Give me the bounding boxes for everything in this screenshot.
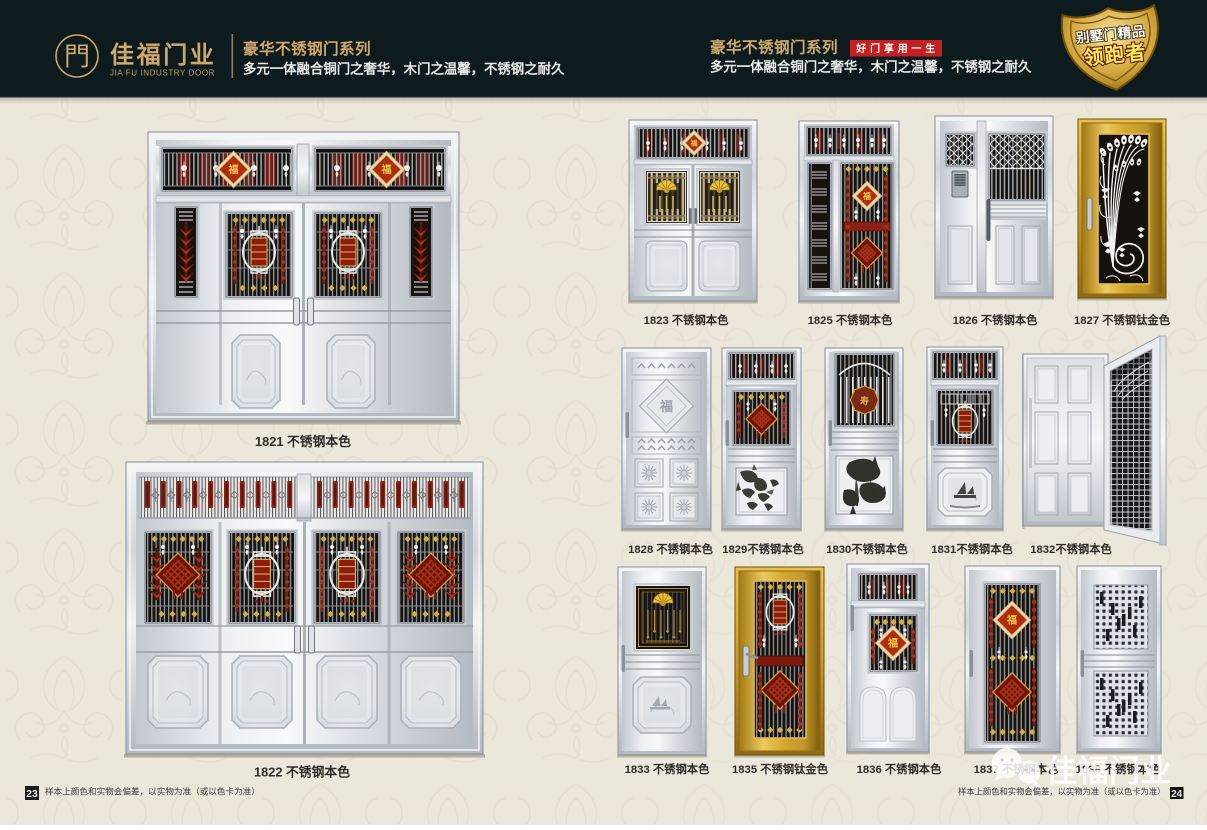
svg-text:1831不锈钢本色: 1831不锈钢本色 xyxy=(931,542,1013,556)
svg-text:24: 24 xyxy=(1171,789,1183,800)
svg-text:豪华不锈钢门系列: 豪华不锈钢门系列 xyxy=(710,38,838,57)
svg-text:样本上颜色和实物会偏差，以实物为准（或以色卡为准）: 样本上颜色和实物会偏差，以实物为准（或以色卡为准） xyxy=(45,786,260,797)
svg-text:多元一体融合铜门之奢华，木门之温馨，不锈钢之耐久: 多元一体融合铜门之奢华，木门之温馨，不锈钢之耐久 xyxy=(243,61,565,77)
svg-text:1826 不锈钢本色: 1826 不锈钢本色 xyxy=(953,313,1038,327)
svg-text:福: 福 xyxy=(381,163,392,176)
svg-text:1830不锈钢本色: 1830不锈钢本色 xyxy=(826,542,908,556)
svg-text:福: 福 xyxy=(887,637,898,650)
svg-text:豪华不锈钢门系列: 豪华不锈钢门系列 xyxy=(243,39,371,58)
svg-text:福: 福 xyxy=(659,399,673,414)
svg-text:JIA FU INDUSTRY DOOR: JIA FU INDUSTRY DOOR xyxy=(110,69,215,78)
svg-text:1832不锈钢本色: 1832不锈钢本色 xyxy=(1030,542,1112,556)
svg-text:1827 不锈钢钛金色: 1827 不锈钢钛金色 xyxy=(1074,313,1171,327)
svg-text:多元一体融合铜门之奢华，木门之温馨，不锈钢之耐久: 多元一体融合铜门之奢华，木门之温馨，不锈钢之耐久 xyxy=(710,59,1032,75)
svg-text:1821 不锈钢本色: 1821 不锈钢本色 xyxy=(255,434,351,449)
svg-text:1835 不锈钢钛金色: 1835 不锈钢钛金色 xyxy=(732,762,829,776)
svg-text:寿: 寿 xyxy=(860,395,869,406)
svg-text:佳福门业: 佳福门业 xyxy=(1046,754,1172,789)
svg-text:1828 不锈钢本色: 1828 不锈钢本色 xyxy=(628,542,713,556)
svg-text:23: 23 xyxy=(26,788,38,800)
svg-text:福: 福 xyxy=(690,139,698,148)
svg-text:1825 不锈钢本色: 1825 不锈钢本色 xyxy=(808,313,893,327)
svg-text:1833 不锈钢本色: 1833 不锈钢本色 xyxy=(625,762,710,776)
svg-text:1822 不锈钢本色: 1822 不锈钢本色 xyxy=(254,765,350,780)
svg-text:福: 福 xyxy=(1006,614,1017,627)
svg-text:1836 不锈钢本色: 1836 不锈钢本色 xyxy=(857,762,942,776)
svg-text:1823 不锈钢本色: 1823 不锈钢本色 xyxy=(644,313,729,327)
svg-text:好 门 享 用 一 生: 好 门 享 用 一 生 xyxy=(855,42,935,55)
svg-text:1829不锈钢本色: 1829不锈钢本色 xyxy=(722,542,804,556)
svg-text:門: 門 xyxy=(64,43,90,72)
svg-text:福: 福 xyxy=(228,163,239,176)
svg-text:福: 福 xyxy=(862,191,871,201)
svg-text:佳福门业: 佳福门业 xyxy=(110,41,216,69)
